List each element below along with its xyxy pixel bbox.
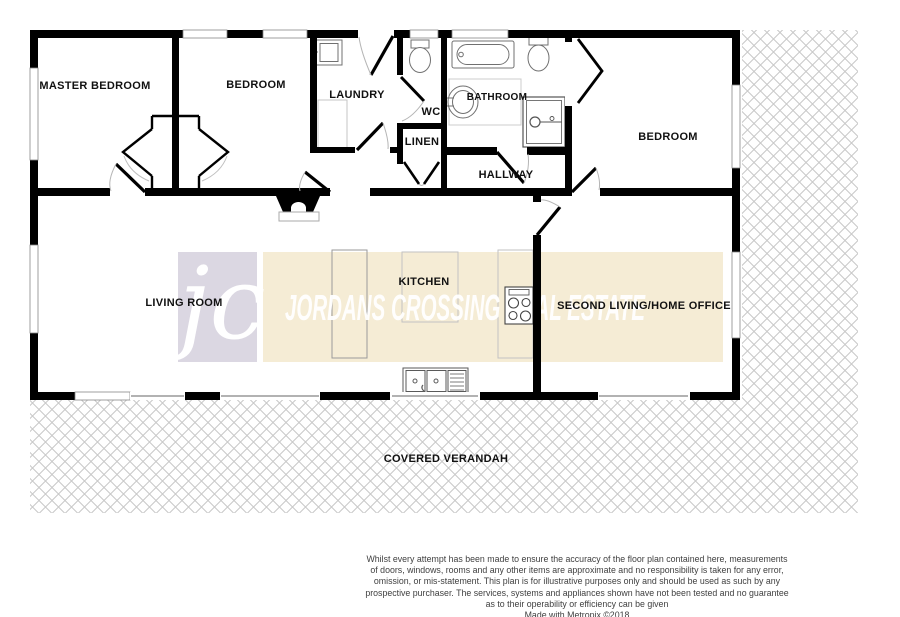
room-label-bedroom-2: BEDROOM [226,79,286,91]
toilet-icon [528,36,549,71]
disclaimer: Whilst every attempt has been made to en… [252,554,900,617]
room-label-living-room: LIVING ROOM [145,297,222,309]
bathtub-icon [452,41,514,68]
room-label-laundry: LAUNDRY [329,89,385,101]
room-label-linen: LINEN [405,136,440,148]
disclaimer-line: Whilst every attempt has been made to en… [252,554,900,565]
room-label-covered-verandah: COVERED VERANDAH [384,453,509,465]
room-label-second-living: SECOND LIVING/HOME OFFICE [557,300,731,312]
room-label-bedroom-3: BEDROOM [638,131,698,143]
disclaimer-credit: Made with Metropix ©2018 [252,610,900,617]
room-label-hallway: HALLWAY [479,169,534,181]
floor-plan-page: jc JORDANS CROSSING REAL ESTATE [0,0,900,617]
shower-icon [523,97,565,147]
floor-plan-drawing: jc JORDANS CROSSING REAL ESTATE [0,0,900,530]
disclaimer-line: of doors, windows, rooms and any other i… [252,565,900,576]
disclaimer-line: prospective purchaser. The services, sys… [252,588,900,599]
room-label-master-bedroom: MASTER BEDROOM [39,80,150,92]
room-label-bathroom: BATHROOM [467,92,528,103]
kitchen-sink-icon [403,368,468,394]
disclaimer-line: omission, or mis-statement. This plan is… [252,576,900,587]
room-label-kitchen: KITCHEN [399,276,450,288]
disclaimer-line: as to their operability or efficiency ca… [252,599,900,610]
appliance-space [318,100,347,148]
room-label-wc: WC [422,106,441,118]
fireplace-icon [276,196,320,221]
wc-toilet-icon [410,40,431,73]
cooktop-icon [505,287,533,324]
